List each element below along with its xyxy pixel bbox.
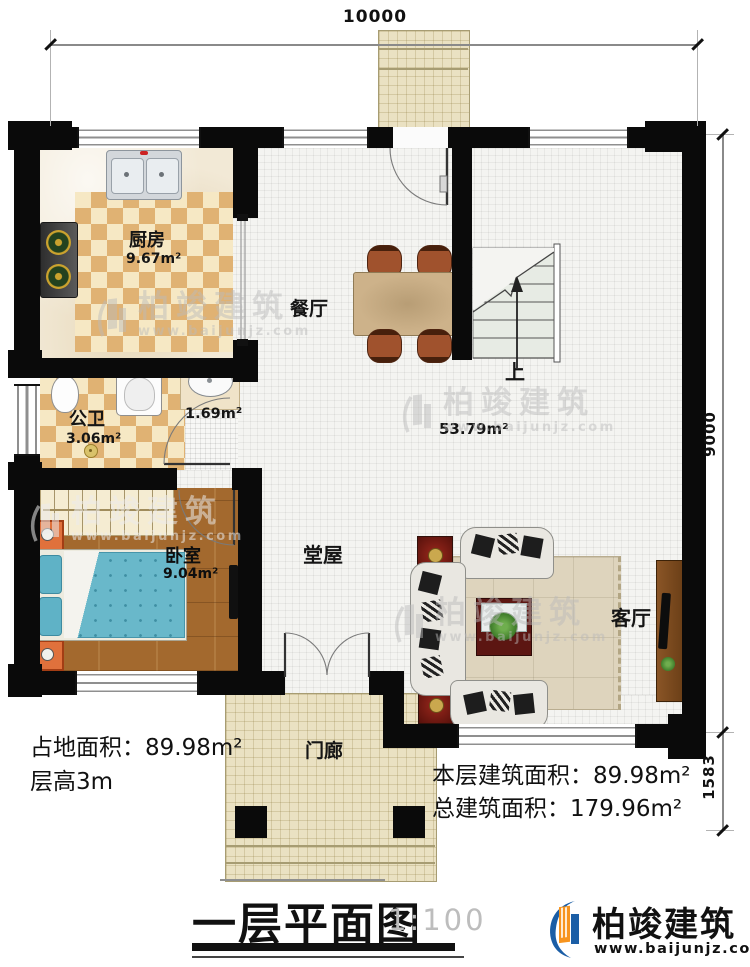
sofa-pillow (418, 571, 442, 595)
porch-step-line (225, 845, 435, 847)
rect (561, 908, 563, 938)
sofa-pillow (497, 533, 520, 556)
hall-area-label: 53.79m² (439, 421, 509, 438)
corner-pilaster (8, 121, 72, 150)
wall (448, 127, 528, 148)
gas-stove (40, 222, 78, 298)
back-porch-step-line (378, 68, 468, 70)
end-table-knob (429, 698, 444, 713)
porch-step-line (225, 862, 435, 864)
kitchen-label: 厨房 (129, 231, 165, 251)
plant (490, 613, 517, 640)
pillow (39, 597, 62, 636)
washer-drum (124, 377, 155, 411)
pillow (39, 555, 62, 594)
sofa-pillow (513, 693, 535, 715)
site-area-note: 占地面积：89.98m² (30, 728, 242, 762)
faucet (140, 151, 148, 155)
brand-site: www.baijunjz.com (594, 941, 750, 957)
wall (195, 671, 240, 695)
drawing-scale: 1:100 (388, 903, 487, 937)
wall (365, 127, 393, 148)
burner (46, 230, 71, 255)
nightstand-lamp (41, 648, 54, 661)
living-label: 客厅 (611, 607, 651, 629)
tv-cabinet (656, 560, 684, 702)
end-table-knob (428, 548, 443, 563)
wardrobe-rail (43, 509, 169, 511)
dimension-height-porch: 1583 (700, 747, 718, 807)
sofa-pillow (419, 628, 442, 651)
sofa-pillow (420, 655, 444, 679)
dining-label: 餐厅 (290, 299, 328, 320)
back-porch-step-line (378, 48, 468, 50)
tv (658, 593, 671, 649)
total-area-note: 总建筑面积：179.96m² (432, 789, 682, 823)
kitchen-sink (106, 150, 182, 200)
brand-logo-icon (544, 896, 584, 960)
wall (30, 358, 258, 378)
porch-label: 门廊 (305, 741, 343, 762)
window (75, 671, 199, 695)
dining-chair (417, 329, 452, 363)
basin-area-label: 1.69m² (185, 407, 242, 423)
wall (238, 468, 262, 695)
wall (400, 724, 457, 748)
dimension-width: 10000 (330, 7, 420, 27)
title-underline-thick (192, 943, 455, 951)
wall (197, 127, 282, 148)
window (77, 127, 201, 148)
floor-area-note: 本层建筑面积：89.98m² (432, 756, 690, 790)
dimension-line (722, 135, 724, 831)
bedroom-tv (229, 565, 238, 619)
sink-drain (124, 172, 129, 177)
wall-junction (8, 350, 42, 378)
bed (33, 549, 187, 641)
wall (233, 148, 258, 218)
wall (452, 148, 472, 360)
bath-label: 公卫 (69, 410, 105, 430)
sofa-pillow (420, 599, 443, 622)
bedroom-area-label: 9.04m² (163, 567, 218, 582)
title-top-rule (220, 879, 385, 881)
dining-table (353, 272, 462, 336)
rect (559, 906, 570, 943)
window (14, 384, 40, 456)
stair-up-label: 上 (505, 361, 525, 383)
coffee-table (476, 598, 532, 656)
basin-drain (207, 378, 212, 383)
sink-drain (159, 172, 164, 177)
wall (369, 671, 404, 695)
sofa-bottom (450, 680, 548, 730)
nightstand-lamp (41, 528, 54, 541)
rect (571, 914, 579, 944)
sofa-pillow (520, 535, 543, 558)
sofa-pillow (489, 690, 512, 713)
drain-center (89, 449, 92, 452)
wall (14, 127, 40, 356)
window (528, 127, 629, 148)
title-underline-thin (192, 956, 464, 958)
porch-column (235, 806, 267, 838)
dimension-height-main: 9000 (701, 404, 719, 464)
sofa-pillow (463, 691, 487, 715)
plant-small (661, 657, 675, 671)
bedroom-label: 卧室 (165, 547, 201, 567)
sofa-left (410, 562, 466, 696)
brand-name: 柏竣建筑 (592, 897, 736, 946)
burner (46, 264, 71, 289)
dining-chair (367, 329, 402, 363)
toilet-bowl (51, 375, 79, 413)
door-opening (393, 127, 448, 148)
window (282, 127, 369, 148)
wall-junction (8, 462, 42, 490)
floor-height-note: 层高3m (30, 762, 113, 796)
dimension-line (50, 44, 698, 46)
bath-area-label: 3.06m² (66, 432, 121, 447)
corner-pilaster (8, 664, 42, 697)
sofa-pillow (471, 534, 495, 558)
sofa-top (460, 527, 554, 579)
rect (565, 907, 567, 937)
hall-label: 堂屋 (303, 544, 343, 566)
porch-column (393, 806, 425, 838)
floor-plan-canvas: 厨房 9.67m² 餐厅 公卫 3.06m² 1.69m² 卧室 9.04m² … (0, 0, 750, 967)
kitchen-tile (75, 192, 233, 352)
sheet-fold (64, 551, 110, 638)
kitchen-area-label: 9.67m² (126, 252, 181, 267)
porch-floor (225, 693, 437, 882)
window (457, 724, 637, 748)
